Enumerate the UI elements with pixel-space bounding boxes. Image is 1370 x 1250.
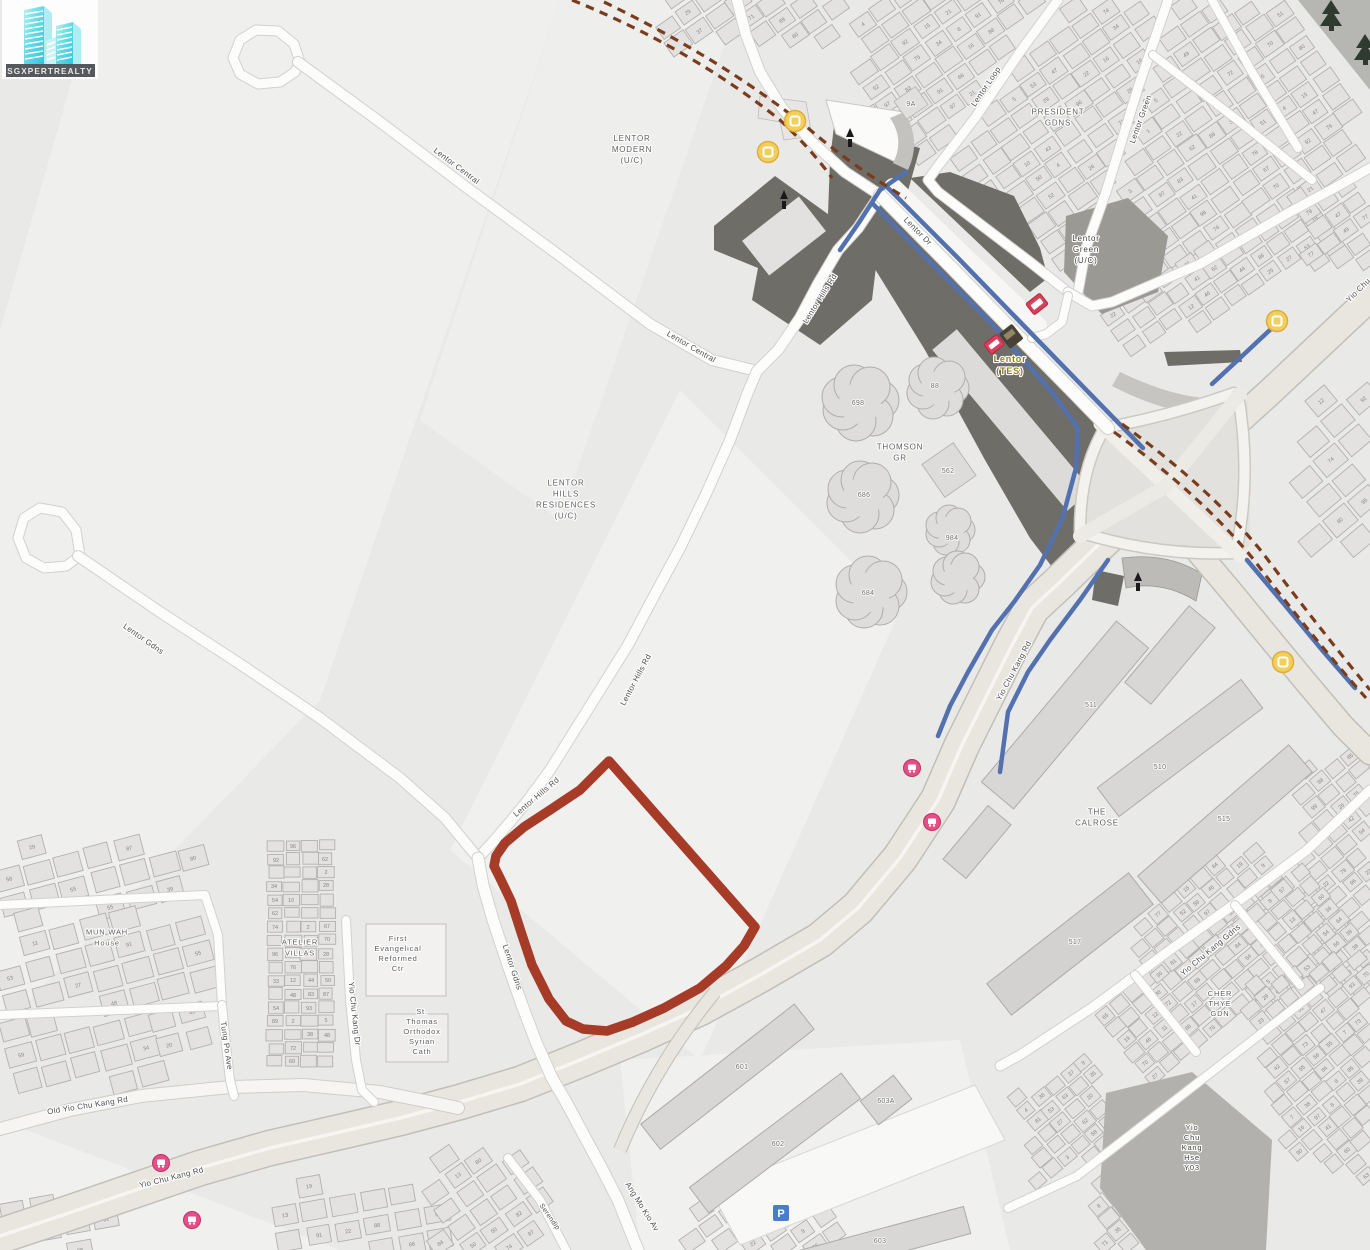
svg-text:19: 19	[306, 1184, 313, 1191]
svg-text:601: 601	[736, 1064, 749, 1071]
svg-text:603A: 603A	[877, 1098, 895, 1105]
svg-text:67: 67	[324, 924, 330, 930]
svg-text:Lentor: Lentor	[1072, 234, 1099, 243]
svg-text:517: 517	[1069, 939, 1082, 946]
svg-text:HILLS: HILLS	[553, 490, 579, 499]
svg-text:686: 686	[858, 492, 871, 499]
svg-text:(U/C): (U/C)	[1074, 256, 1097, 265]
svg-text:Thomas: Thomas	[406, 1017, 438, 1026]
svg-text:93: 93	[306, 1006, 312, 1012]
svg-text:13: 13	[282, 1213, 289, 1220]
svg-text:2: 2	[306, 925, 309, 931]
svg-text:44: 44	[308, 978, 314, 984]
svg-text:62: 62	[322, 857, 328, 863]
svg-text:2: 2	[291, 1019, 294, 1025]
svg-text:Cath: Cath	[412, 1047, 431, 1056]
svg-text:THYE: THYE	[1208, 999, 1231, 1008]
svg-text:34: 34	[271, 884, 277, 890]
svg-text:60: 60	[289, 1059, 295, 1065]
svg-text:Chu: Chu	[1184, 1133, 1200, 1142]
svg-text:984: 984	[946, 535, 959, 542]
svg-text:Yio: Yio	[1186, 1123, 1199, 1132]
svg-text:510: 510	[1154, 764, 1167, 771]
svg-text:87: 87	[323, 992, 329, 998]
svg-text:Reformed: Reformed	[378, 954, 417, 963]
svg-text:LENTOR: LENTOR	[613, 134, 650, 143]
svg-text:74: 74	[272, 925, 278, 931]
svg-text:Orthodox: Orthodox	[403, 1027, 440, 1036]
svg-text:88: 88	[931, 383, 939, 390]
svg-text:Y03: Y03	[1184, 1163, 1200, 1172]
svg-text:VILLAS: VILLAS	[285, 949, 315, 958]
svg-text:GR: GR	[893, 454, 907, 463]
svg-text:9A: 9A	[906, 101, 915, 108]
svg-text:66: 66	[409, 1242, 416, 1249]
svg-text:THOMSON: THOMSON	[877, 443, 924, 452]
svg-text:33: 33	[273, 979, 279, 985]
svg-text:684: 684	[862, 590, 875, 597]
svg-text:48: 48	[324, 1033, 330, 1039]
svg-text:28: 28	[323, 952, 329, 958]
svg-text:511: 511	[1085, 702, 1097, 709]
svg-text:72: 72	[290, 1046, 296, 1052]
svg-text:SGXPERTREALTY: SGXPERTREALTY	[7, 67, 93, 76]
svg-text:GDNS: GDNS	[1045, 119, 1071, 128]
svg-text:MODERN: MODERN	[612, 145, 652, 154]
svg-text:(U/C): (U/C)	[620, 156, 643, 165]
svg-text:House: House	[94, 939, 120, 948]
svg-text:48: 48	[290, 993, 296, 999]
svg-text:Evangelical: Evangelical	[374, 944, 421, 953]
svg-text:92: 92	[273, 858, 279, 864]
svg-text:76: 76	[290, 965, 296, 971]
svg-text:LENTOR: LENTOR	[547, 479, 584, 488]
svg-text:603: 603	[874, 1238, 887, 1245]
svg-text:54: 54	[272, 898, 278, 904]
svg-text:St.: St.	[416, 1007, 428, 1016]
svg-text:(U/C): (U/C)	[554, 512, 577, 521]
svg-text:P: P	[777, 1208, 784, 1220]
svg-text:562: 562	[942, 468, 955, 475]
svg-text:62: 62	[272, 911, 278, 917]
svg-text:91: 91	[316, 1233, 323, 1240]
svg-text:96: 96	[272, 952, 278, 958]
svg-text:Ctr: Ctr	[392, 964, 404, 973]
svg-text:50: 50	[325, 978, 331, 984]
svg-text:PRESIDENT: PRESIDENT	[1032, 108, 1085, 117]
svg-text:5: 5	[324, 1018, 327, 1024]
svg-text:ATELIER: ATELIER	[282, 938, 318, 947]
svg-text:602: 602	[772, 1141, 785, 1148]
svg-text:38: 38	[307, 1032, 313, 1038]
svg-text:Lentor: Lentor	[994, 354, 1027, 364]
svg-text:Green: Green	[1073, 245, 1099, 254]
svg-text:10: 10	[288, 898, 294, 904]
svg-text:515: 515	[1218, 816, 1231, 823]
svg-text:Kang: Kang	[1182, 1143, 1203, 1152]
svg-text:89: 89	[272, 1019, 278, 1025]
svg-text:70: 70	[324, 937, 330, 943]
svg-text:THE: THE	[1088, 808, 1106, 817]
svg-text:CHER: CHER	[1208, 989, 1232, 998]
svg-text:88: 88	[374, 1222, 381, 1229]
svg-text:83: 83	[308, 992, 314, 998]
svg-text:Syrian: Syrian	[409, 1037, 435, 1046]
svg-text:MUN WAH: MUN WAH	[86, 928, 128, 937]
svg-text:GDN: GDN	[1210, 1009, 1229, 1018]
svg-text:(TES): (TES)	[996, 366, 1024, 376]
svg-text:RESIDENCES: RESIDENCES	[536, 501, 596, 510]
svg-text:First: First	[389, 934, 408, 943]
svg-text:Hse: Hse	[1184, 1153, 1200, 1162]
svg-text:698: 698	[852, 400, 865, 407]
svg-text:CALROSE: CALROSE	[1075, 819, 1119, 828]
svg-text:12: 12	[290, 978, 296, 984]
svg-text:96: 96	[290, 844, 296, 850]
svg-text:22: 22	[345, 1229, 352, 1236]
svg-text:28: 28	[323, 883, 329, 889]
svg-text:2: 2	[324, 870, 327, 876]
svg-text:54: 54	[273, 1006, 279, 1012]
